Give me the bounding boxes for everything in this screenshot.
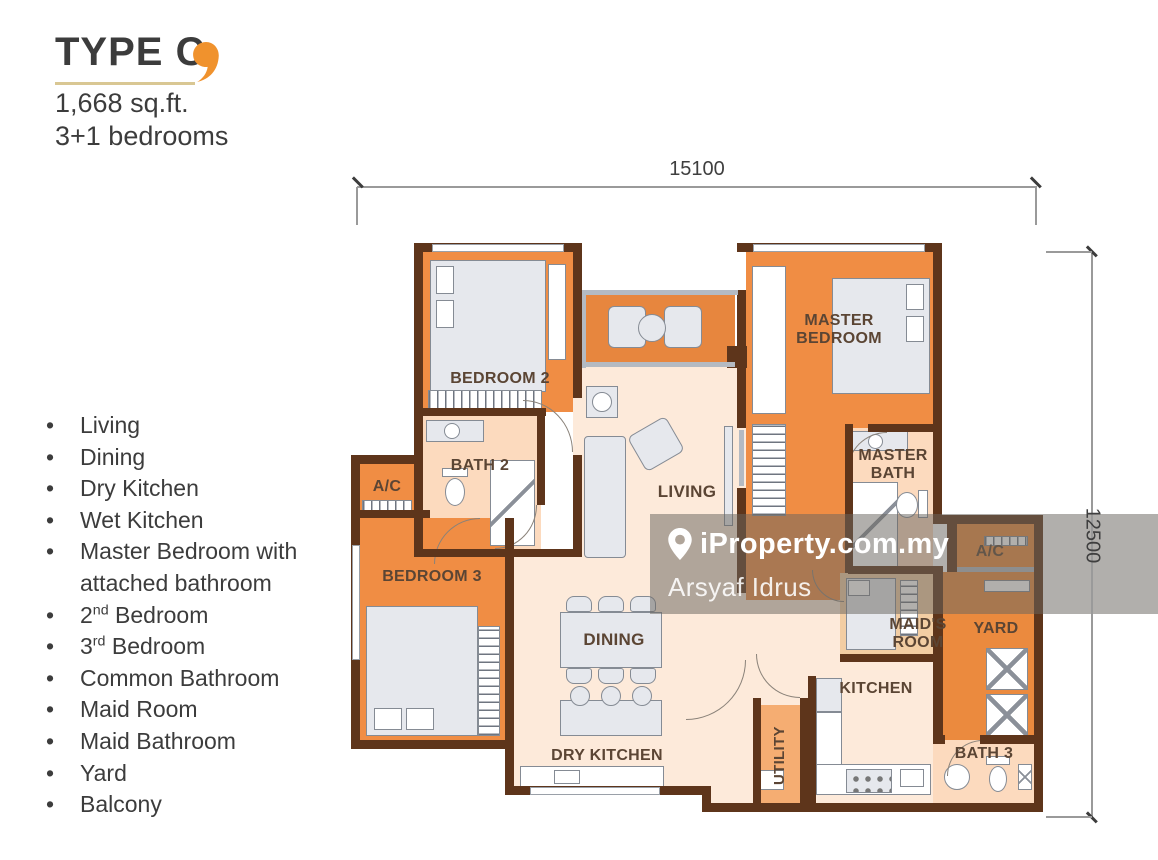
window bbox=[530, 787, 660, 795]
room-label-dining: DINING bbox=[552, 630, 676, 650]
dimension-ext bbox=[1046, 251, 1092, 253]
feature-item: 3rd Bedroom bbox=[42, 631, 330, 663]
wall bbox=[737, 366, 746, 428]
wall bbox=[414, 549, 574, 557]
feature-item: Master Bedroom with attached bathroom bbox=[42, 536, 330, 599]
window bbox=[432, 244, 564, 252]
stove bbox=[846, 769, 892, 793]
unit-bedrooms: 3+1 bedrooms bbox=[55, 121, 228, 152]
feature-item: Wet Kitchen bbox=[42, 505, 330, 537]
vent-box bbox=[1018, 764, 1032, 790]
dimension-height-value: 12500 bbox=[1070, 493, 1114, 577]
dining-chair bbox=[566, 596, 592, 612]
balcony-sliding-door bbox=[585, 362, 735, 367]
feature-list: LivingDiningDry KitchenWet KitchenMaster… bbox=[42, 410, 342, 821]
dimension-ext bbox=[356, 187, 358, 225]
bar-stool bbox=[632, 686, 652, 706]
wall bbox=[414, 408, 546, 416]
dimension-ext bbox=[1035, 187, 1037, 225]
wall bbox=[573, 455, 582, 557]
title-underline bbox=[55, 82, 195, 85]
wall bbox=[840, 654, 933, 662]
pillow bbox=[906, 316, 924, 342]
dimension-ext bbox=[1046, 816, 1092, 818]
bar-stool bbox=[601, 686, 621, 706]
wall bbox=[360, 510, 430, 518]
feature-item: Maid Bathroom bbox=[42, 726, 330, 758]
wall bbox=[351, 455, 423, 464]
room-label-living: LIVING bbox=[625, 482, 749, 502]
washer-icon bbox=[986, 694, 1028, 736]
wall bbox=[702, 803, 1043, 812]
dimension-line-width bbox=[357, 186, 1037, 188]
floor-plan-page: TYPE C 1,668 sq.ft. 3+1 bedrooms LivingD… bbox=[0, 0, 1158, 860]
feature-item: Balcony bbox=[42, 789, 330, 821]
washer-icon bbox=[986, 648, 1028, 690]
wall bbox=[351, 740, 514, 749]
balcony-table bbox=[638, 314, 666, 342]
wall bbox=[980, 735, 1034, 744]
dining-chair bbox=[630, 668, 656, 684]
basin bbox=[444, 423, 460, 439]
walk-in-wardrobe bbox=[752, 424, 786, 516]
feature-item: Living bbox=[42, 410, 330, 442]
feature-item: Common Bathroom bbox=[42, 663, 330, 695]
feature-item: Yard bbox=[42, 758, 330, 790]
wall bbox=[933, 243, 942, 524]
room-label-utility: UTILITY bbox=[753, 712, 805, 800]
bedroom2-panel bbox=[548, 264, 566, 360]
tv-console bbox=[724, 426, 733, 526]
room-label-yard: YARD bbox=[958, 620, 1034, 638]
wall bbox=[868, 424, 933, 432]
room-label-kitchen: KITCHEN bbox=[812, 680, 940, 698]
room-label-bath3: BATH 3 bbox=[934, 745, 1034, 763]
dining-chair bbox=[598, 668, 624, 684]
balcony-parapet bbox=[582, 290, 738, 295]
window bbox=[352, 545, 360, 660]
feature-item: 2nd Bedroom bbox=[42, 600, 330, 632]
room-label-dry-kitchen: DRY KITCHEN bbox=[537, 747, 677, 765]
room-label-bedroom3: BEDROOM 3 bbox=[362, 568, 502, 586]
pillow bbox=[406, 708, 434, 730]
wall bbox=[505, 518, 514, 749]
wall bbox=[933, 735, 945, 744]
wall bbox=[933, 662, 943, 740]
dry-kitchen-counter bbox=[520, 766, 664, 787]
watermark-brand: iProperty.com.my bbox=[700, 528, 949, 561]
dimension-width-value: 15100 bbox=[647, 158, 747, 181]
bar-stool bbox=[570, 686, 590, 706]
hall-floor bbox=[513, 557, 573, 593]
sink bbox=[554, 770, 580, 784]
room-label-maids-room: MAID'S ROOM bbox=[870, 616, 966, 653]
sink bbox=[900, 769, 924, 787]
planter bbox=[592, 392, 612, 412]
balcony-parapet bbox=[582, 290, 586, 368]
master-sliding-door bbox=[739, 430, 744, 486]
page-title: TYPE C bbox=[55, 30, 205, 75]
feature-item: Dry Kitchen bbox=[42, 473, 330, 505]
wardrobe bbox=[478, 626, 500, 736]
wardrobe bbox=[752, 266, 786, 414]
dining-chair bbox=[598, 596, 624, 612]
feature-item: Dining bbox=[42, 442, 330, 474]
dining-chair bbox=[566, 668, 592, 684]
pillow bbox=[436, 266, 454, 294]
wall bbox=[573, 243, 582, 398]
unit-area: 1,668 sq.ft. bbox=[55, 88, 189, 119]
pillow bbox=[374, 708, 402, 730]
wall bbox=[537, 416, 545, 505]
toilet-icon bbox=[989, 766, 1007, 792]
room-label-bedroom2: BEDROOM 2 bbox=[430, 370, 570, 388]
comma-icon bbox=[193, 42, 219, 82]
toilet-icon bbox=[445, 478, 465, 506]
pillow bbox=[906, 284, 924, 310]
room-label-master-bath: MASTER BATH bbox=[853, 447, 933, 484]
sofa-furniture bbox=[584, 436, 626, 558]
room-label-master-bedroom: MASTER BEDROOM bbox=[789, 312, 889, 349]
pillow bbox=[436, 300, 454, 328]
location-pin-icon bbox=[668, 528, 692, 560]
kitchen-counter bbox=[816, 712, 842, 766]
balcony-chair bbox=[664, 306, 702, 348]
room-label-ac-left: A/C bbox=[358, 478, 416, 496]
room-label-bath2: BATH 2 bbox=[425, 457, 535, 475]
watermark-agent: Arsyaf Idrus bbox=[668, 572, 812, 603]
feature-item: Maid Room bbox=[42, 694, 330, 726]
window bbox=[753, 244, 925, 252]
